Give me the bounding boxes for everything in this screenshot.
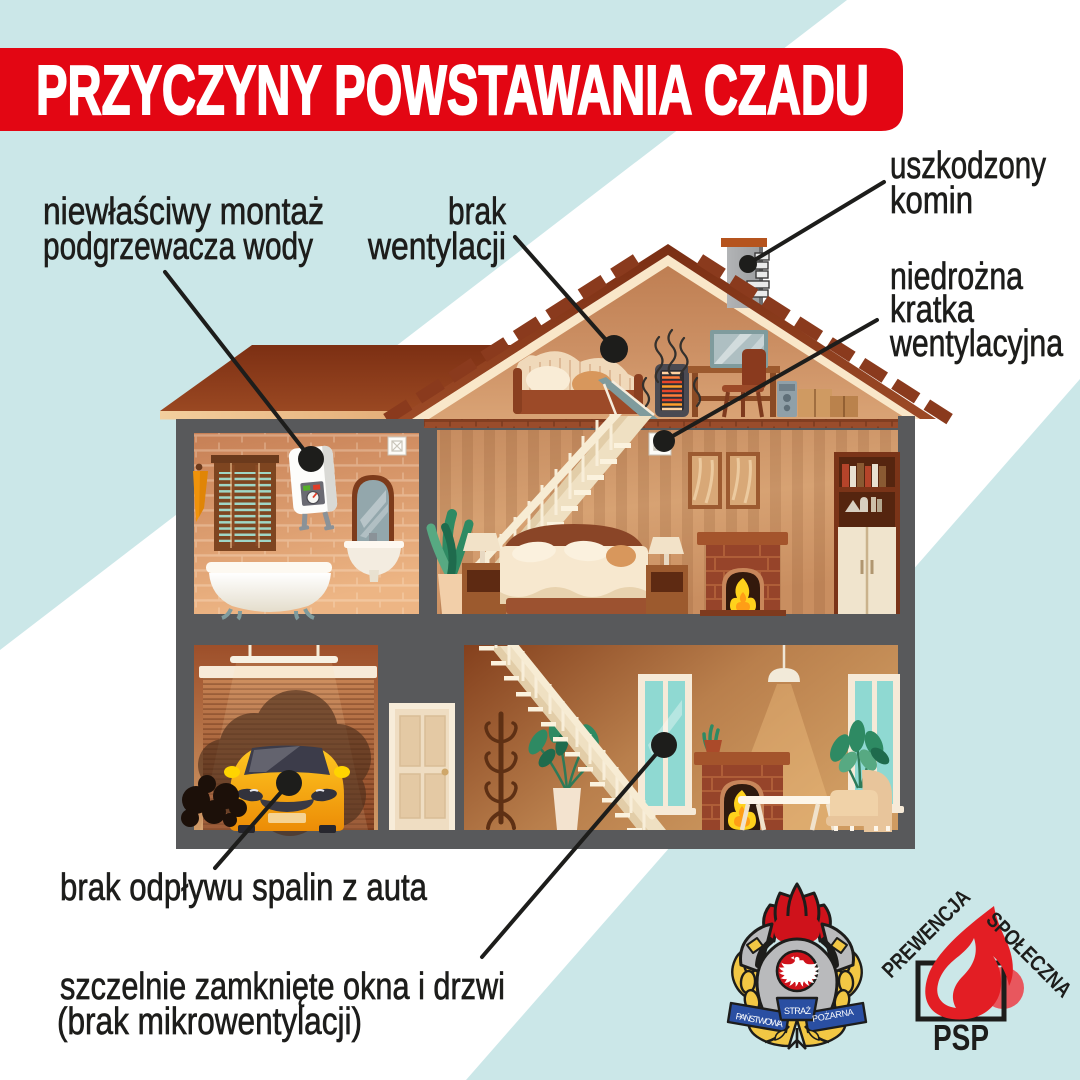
svg-text:komin: komin [890,180,973,222]
svg-text:PSP: PSP [933,1017,989,1058]
svg-text:brak odpływu spalin z auta: brak odpływu spalin z auta [60,867,428,909]
svg-text:PRZYCZYNY POWSTAWANIA CZADU: PRZYCZYNY POWSTAWANIA CZADU [36,51,869,129]
svg-text:STRAŻ: STRAŻ [784,1006,812,1016]
svg-text:(brak mikrowentylacji): (brak mikrowentylacji) [57,1001,362,1043]
svg-text:podgrzewacza wody: podgrzewacza wody [43,226,313,268]
svg-text:wentylacji: wentylacji [367,226,506,268]
svg-text:wentylacyjna: wentylacyjna [889,323,1063,365]
